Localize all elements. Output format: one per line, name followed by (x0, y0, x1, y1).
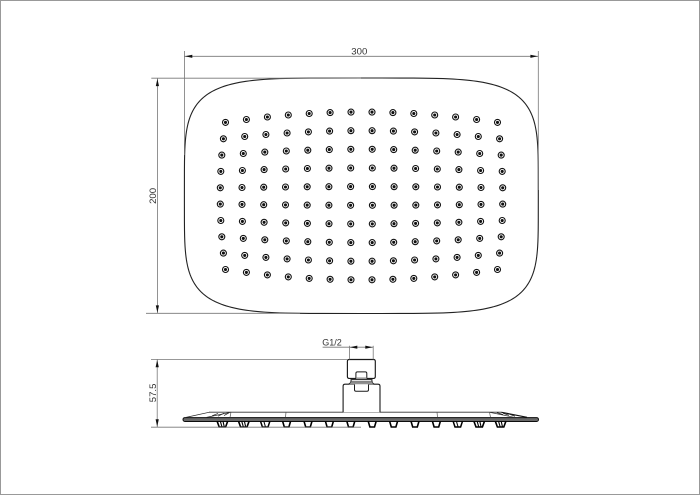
svg-text:57.5: 57.5 (148, 384, 159, 403)
svg-text:300: 300 (351, 47, 367, 58)
svg-text:G1/2: G1/2 (322, 338, 342, 348)
svg-text:200: 200 (148, 188, 159, 204)
